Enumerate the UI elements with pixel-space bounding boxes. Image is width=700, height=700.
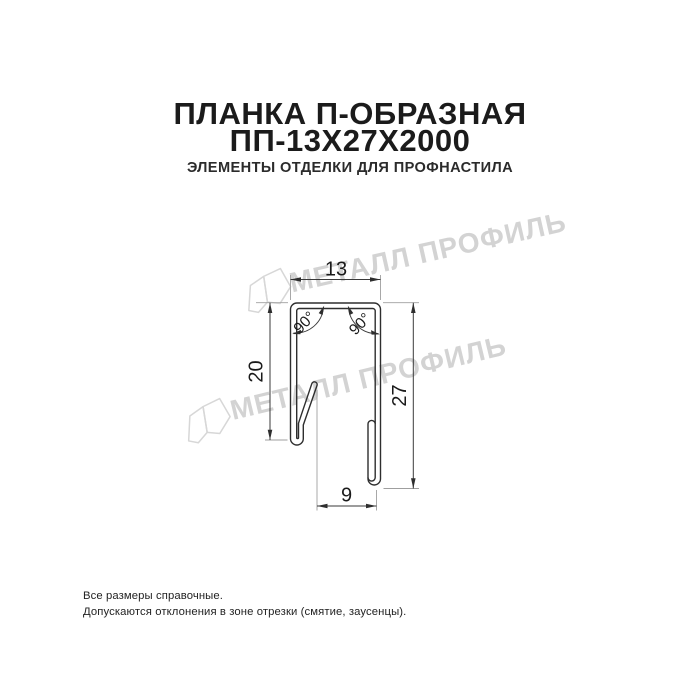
dim-label-bottom-width: 9 <box>341 485 352 507</box>
dim-label-top-width: 13 <box>325 259 347 281</box>
watermark-text: МЕТАЛЛ ПРОФИЛЬ <box>286 206 569 298</box>
dim-label-left-height: 20 <box>246 360 268 382</box>
footnote-line-2: Допускаются отклонения в зоне отрезки (с… <box>83 605 406 621</box>
dim-label-right-height: 27 <box>389 384 411 406</box>
footnote-line-1: Все размеры справочные. <box>83 589 406 605</box>
watermark-middle: МЕТАЛЛ ПРОФИЛЬ <box>180 330 511 445</box>
footnotes: Все размеры справочные. Допускаются откл… <box>83 589 406 620</box>
